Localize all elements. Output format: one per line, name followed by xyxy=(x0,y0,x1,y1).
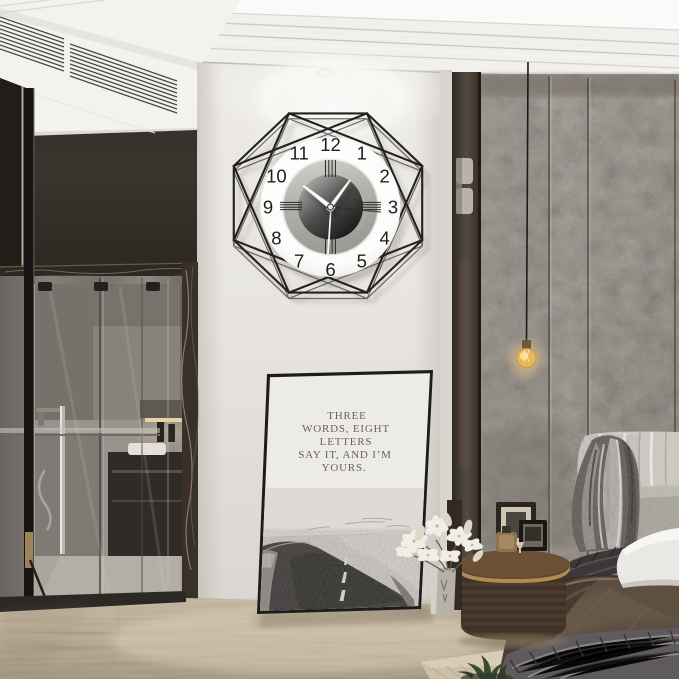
svg-text:12: 12 xyxy=(320,134,341,155)
svg-text:SAY IT, AND I’M: SAY IT, AND I’M xyxy=(298,449,392,461)
svg-text:4: 4 xyxy=(379,228,389,249)
svg-text:6: 6 xyxy=(325,259,335,280)
svg-text:1: 1 xyxy=(357,142,367,163)
svg-text:7: 7 xyxy=(294,251,304,272)
svg-text:LETTERS: LETTERS xyxy=(320,436,373,448)
svg-text:10: 10 xyxy=(266,165,287,186)
svg-text:8: 8 xyxy=(271,228,281,249)
svg-text:9: 9 xyxy=(263,197,273,218)
svg-text:5: 5 xyxy=(357,251,367,272)
svg-text:11: 11 xyxy=(290,142,309,163)
svg-text:WORDS, EIGHT: WORDS, EIGHT xyxy=(302,423,390,435)
svg-text:THREE: THREE xyxy=(327,410,366,422)
svg-text:3: 3 xyxy=(388,197,398,218)
svg-text:2: 2 xyxy=(379,165,389,186)
svg-text:YOURS.: YOURS. xyxy=(322,462,367,474)
